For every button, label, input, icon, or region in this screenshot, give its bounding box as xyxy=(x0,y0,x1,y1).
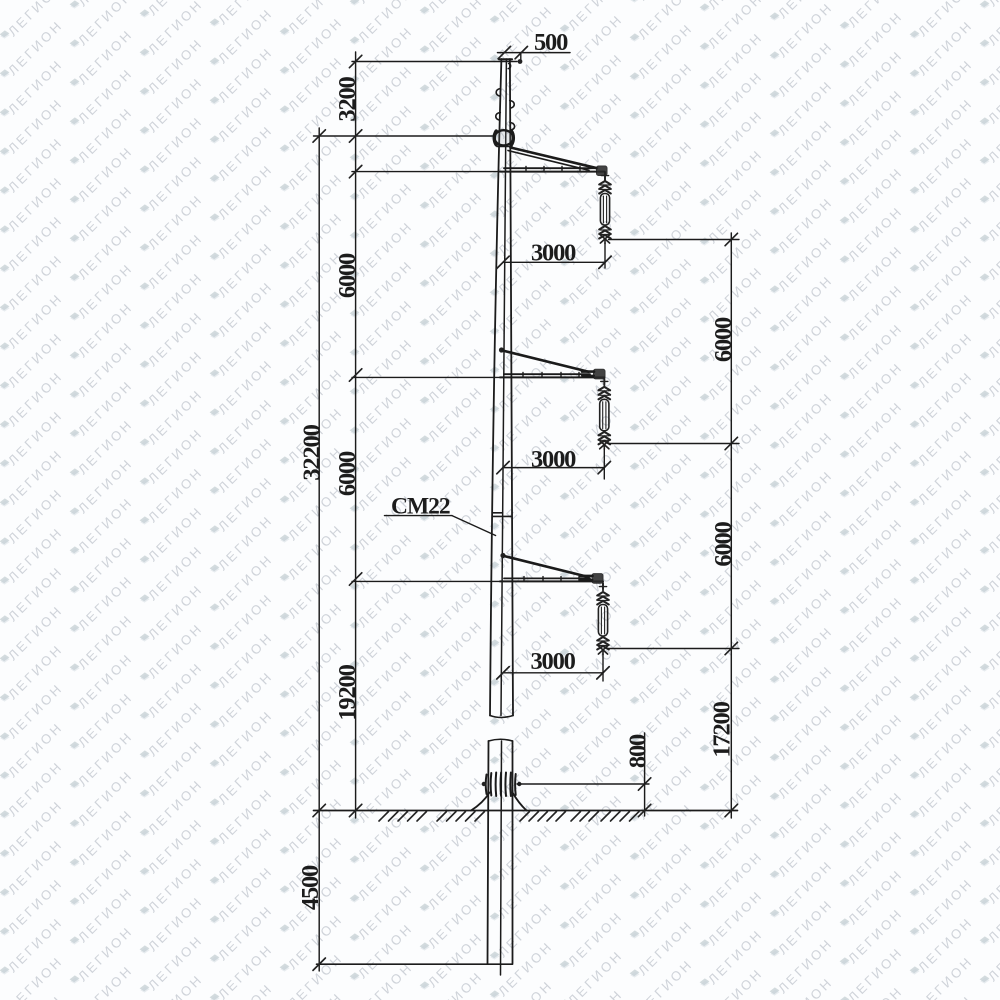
svg-text:4500: 4500 xyxy=(297,865,324,910)
svg-text:3200: 3200 xyxy=(334,76,361,121)
svg-text:500: 500 xyxy=(534,29,568,56)
svg-text:6000: 6000 xyxy=(334,451,361,496)
svg-text:3000: 3000 xyxy=(531,446,576,473)
svg-text:6000: 6000 xyxy=(334,253,361,298)
svg-text:6000: 6000 xyxy=(710,317,737,362)
svg-text:СМ22: СМ22 xyxy=(391,494,450,520)
svg-text:19200: 19200 xyxy=(334,664,361,720)
svg-text:32200: 32200 xyxy=(299,424,326,480)
svg-text:3000: 3000 xyxy=(531,240,576,267)
svg-text:800: 800 xyxy=(625,734,652,768)
svg-text:6000: 6000 xyxy=(710,521,737,566)
svg-text:3000: 3000 xyxy=(531,648,576,675)
svg-text:17200: 17200 xyxy=(709,701,736,757)
